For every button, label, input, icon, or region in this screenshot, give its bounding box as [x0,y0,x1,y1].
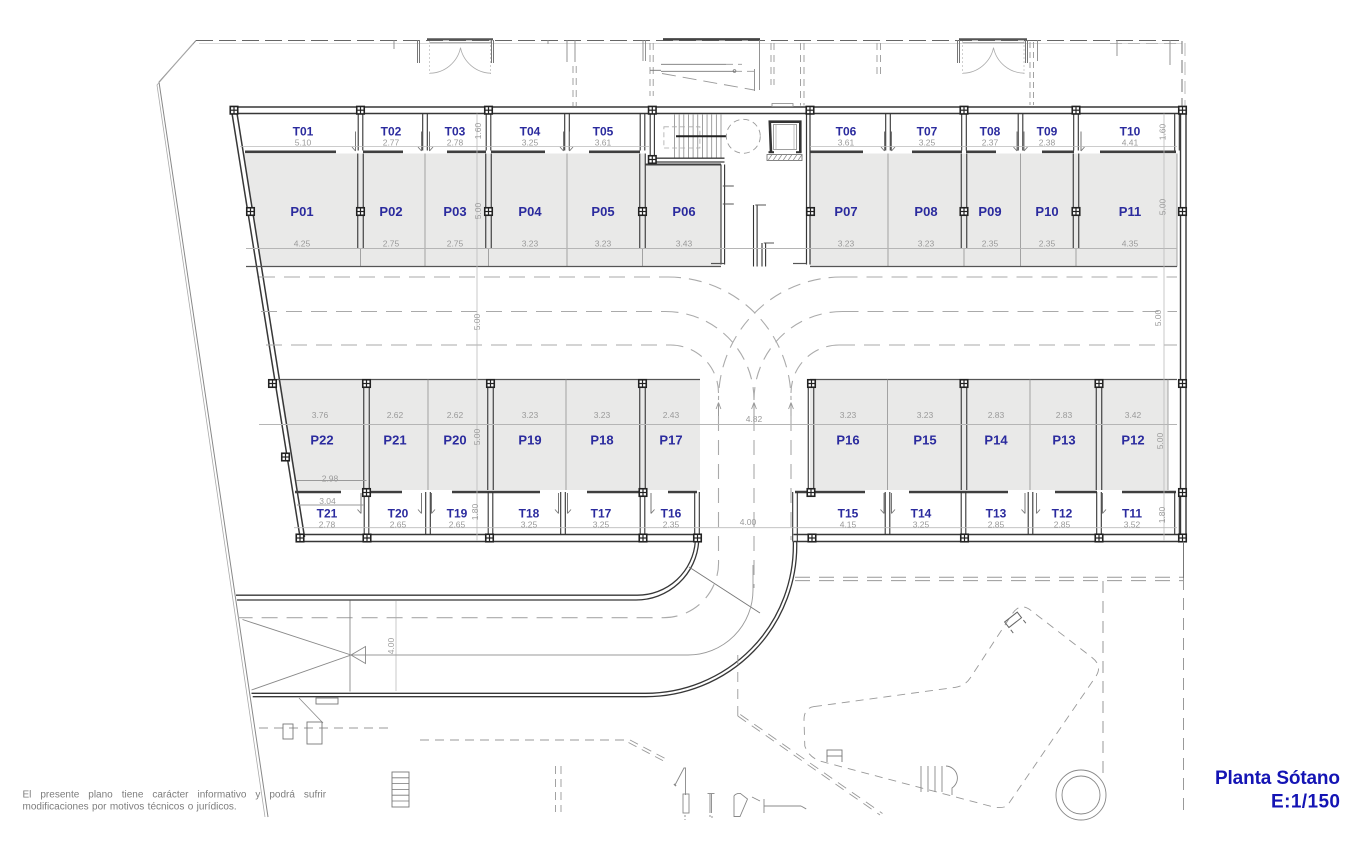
svg-text:3.61: 3.61 [595,138,612,148]
svg-text:3.23: 3.23 [595,239,612,249]
svg-text:T01: T01 [293,125,314,139]
svg-text:4.00: 4.00 [740,517,757,527]
svg-text:2.75: 2.75 [383,239,400,249]
svg-text:5.10: 5.10 [295,138,312,148]
svg-text:El presente plano tiene caráct: El presente plano tiene carácter informa… [23,790,327,801]
svg-text:P03: P03 [443,204,466,219]
svg-text:1.80: 1.80 [470,503,480,520]
svg-text:2.35: 2.35 [663,519,680,529]
svg-text:P22: P22 [310,433,333,448]
svg-text:4.35: 4.35 [1122,239,1139,249]
svg-text:2.78: 2.78 [447,138,464,148]
svg-text:2.35: 2.35 [982,239,999,249]
svg-text:3.23: 3.23 [918,239,935,249]
svg-text:P19: P19 [518,433,541,448]
svg-text:P08: P08 [914,204,937,219]
svg-text:3.25: 3.25 [919,138,936,148]
svg-text:T10: T10 [1120,125,1141,139]
svg-text:3.43: 3.43 [676,239,693,249]
svg-text:3.25: 3.25 [522,138,539,148]
svg-text:4.00: 4.00 [386,637,396,654]
svg-text:2.85: 2.85 [1054,519,1071,529]
svg-text:T08: T08 [980,125,1001,139]
svg-text:2.35: 2.35 [1039,239,1056,249]
svg-text:3.23: 3.23 [522,410,539,420]
svg-text:2.75: 2.75 [447,239,464,249]
svg-text:3.25: 3.25 [913,519,930,529]
svg-text:E:1/150: E:1/150 [1271,792,1340,813]
svg-text:P06: P06 [672,204,695,219]
svg-text:T09: T09 [1037,125,1058,139]
svg-text:P11: P11 [1119,204,1141,219]
svg-text:2.85: 2.85 [988,519,1005,529]
svg-text:T04: T04 [520,125,541,139]
svg-text:P01: P01 [290,204,313,219]
svg-text:P04: P04 [518,204,542,219]
svg-text:3.23: 3.23 [522,239,539,249]
svg-text:2.62: 2.62 [447,410,464,420]
svg-text:5.00: 5.00 [1153,309,1163,326]
svg-text:5.00: 5.00 [473,202,483,219]
svg-text:5.00: 5.00 [1158,198,1168,215]
svg-text:3.52: 3.52 [1124,519,1141,529]
svg-text:P12: P12 [1121,433,1144,448]
svg-text:2.62: 2.62 [387,410,404,420]
svg-text:5.00: 5.00 [472,313,482,330]
svg-text:2.65: 2.65 [449,519,466,529]
svg-text:5.00: 5.00 [1155,432,1165,449]
svg-text:P10: P10 [1035,204,1058,219]
svg-text:T05: T05 [593,125,614,139]
svg-text:P18: P18 [590,433,613,448]
svg-text:4.82: 4.82 [746,414,763,424]
svg-text:P05: P05 [591,204,614,219]
svg-text:3.42: 3.42 [1125,410,1142,420]
svg-text:2.83: 2.83 [988,410,1005,420]
svg-text:P16: P16 [836,433,859,448]
svg-text:P07: P07 [834,204,857,219]
svg-text:Planta Sótano: Planta Sótano [1215,768,1340,789]
svg-text:P13: P13 [1052,433,1075,448]
svg-text:3.23: 3.23 [917,410,934,420]
svg-text:3.23: 3.23 [840,410,857,420]
svg-text:P17: P17 [659,433,682,448]
svg-text:P09: P09 [978,204,1001,219]
svg-text:3.23: 3.23 [838,239,855,249]
svg-text:4.15: 4.15 [840,519,857,529]
svg-text:T07: T07 [917,125,938,139]
svg-text:4.41: 4.41 [1122,138,1139,148]
svg-text:2.37: 2.37 [982,138,999,148]
svg-text:T03: T03 [445,125,466,139]
svg-text:3.25: 3.25 [521,519,538,529]
svg-text:2.77: 2.77 [383,138,400,148]
svg-text:1.60: 1.60 [1158,123,1168,140]
svg-text:T06: T06 [836,125,857,139]
svg-text:P21: P21 [383,433,406,448]
svg-text:2.83: 2.83 [1056,410,1073,420]
svg-text:3.23: 3.23 [594,410,611,420]
svg-text:3.04: 3.04 [319,496,336,506]
svg-text:P20: P20 [443,433,466,448]
svg-text:3.25: 3.25 [593,519,610,529]
svg-text:P02: P02 [379,204,402,219]
svg-text:2.38: 2.38 [1039,138,1056,148]
svg-text:2.65: 2.65 [390,519,407,529]
svg-text:2.98: 2.98 [322,474,339,484]
svg-text:modificaciones por motivos téc: modificaciones por motivos técnicos o ju… [23,802,237,813]
svg-text:1.80: 1.80 [1157,506,1167,523]
svg-text:P15: P15 [913,433,936,448]
svg-text:P14: P14 [984,433,1008,448]
svg-text:5.00: 5.00 [472,428,482,445]
svg-text:3.76: 3.76 [312,410,329,420]
svg-text:4.25: 4.25 [294,239,311,249]
svg-text:2.78: 2.78 [319,519,336,529]
svg-text:T02: T02 [381,125,402,139]
svg-text:2.43: 2.43 [663,410,680,420]
svg-text:3.61: 3.61 [838,138,855,148]
svg-text:1.60: 1.60 [473,122,483,139]
